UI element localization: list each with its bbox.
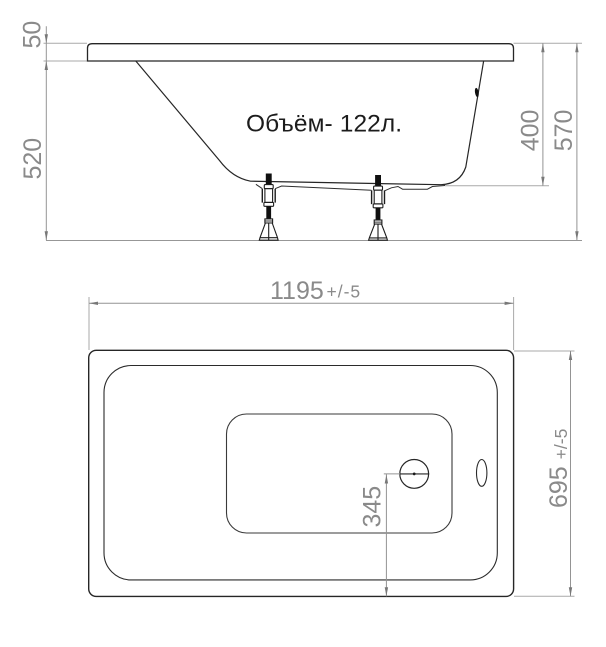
- svg-text:520: 520: [19, 138, 47, 180]
- svg-text:400: 400: [517, 110, 545, 152]
- svg-text:345: 345: [359, 486, 387, 528]
- svg-text:1195: 1195: [270, 277, 324, 305]
- svg-text:570: 570: [550, 110, 578, 152]
- svg-text:695 +/-5: 695 +/-5: [545, 429, 573, 508]
- svg-text:+/-5: +/-5: [327, 282, 362, 302]
- svg-text:50: 50: [19, 21, 47, 49]
- svg-text:Объём- 122л.: Объём- 122л.: [246, 111, 402, 138]
